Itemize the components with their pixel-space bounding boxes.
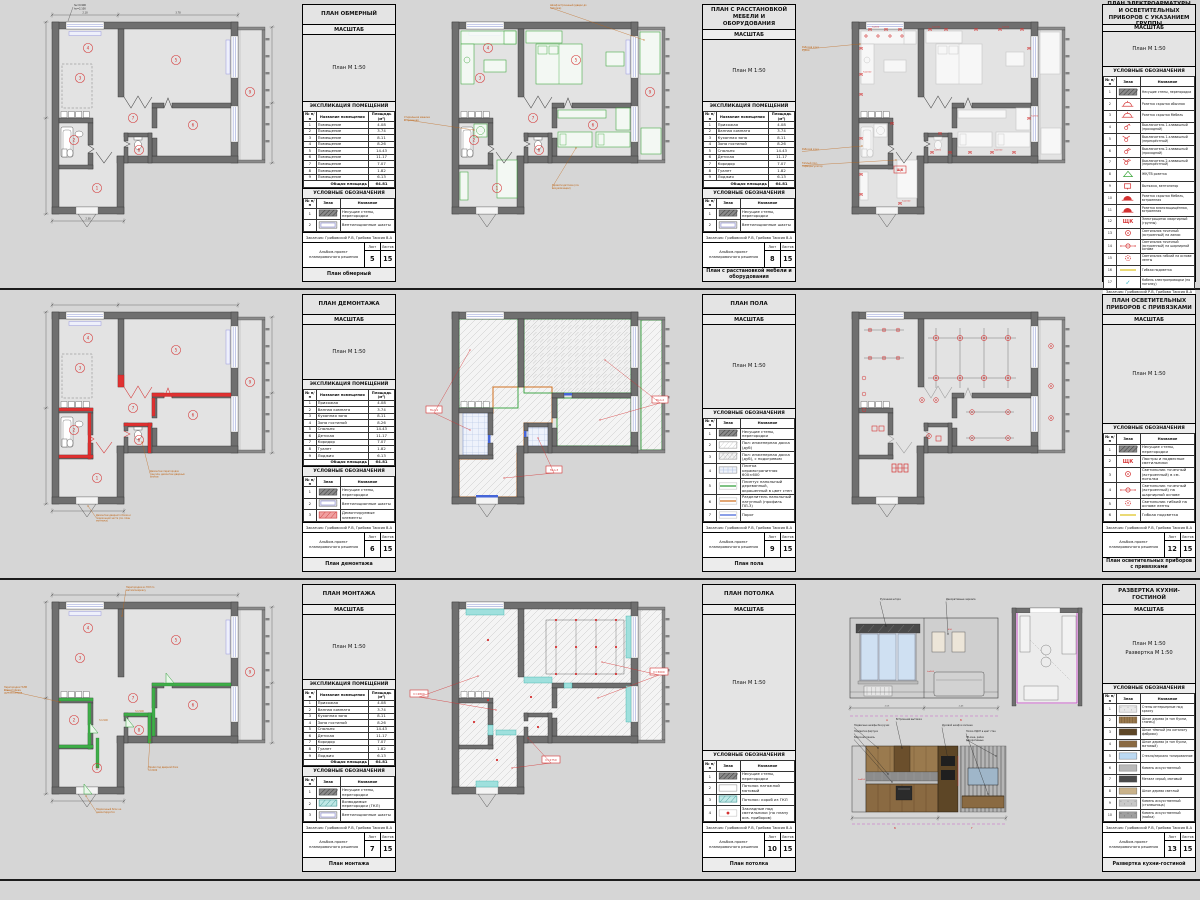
legend-row: 2Розетка скрытая обычная (1104, 99, 1195, 111)
svg-text:А: А (886, 718, 889, 722)
sheets-total: 15 (781, 841, 796, 857)
panel-title: РАЗВЕРТКА КУХНИ-ГОСТИНОЙ (1103, 585, 1195, 605)
legend-symbol-hatch-icon (318, 488, 338, 496)
svg-text:Б: Б (894, 826, 896, 830)
explication-title: ЭКСПЛИКАЦИЯ ПОМЕЩЕНИЙ (703, 102, 795, 111)
scale-line: План М 1:50 (332, 65, 365, 71)
legend-row: 3Потолок: короб из ГКЛ (704, 794, 795, 806)
panel-caption: План с расстановкой мебели и оборудовани… (703, 268, 795, 281)
scale-value: План М 1:50 (1103, 32, 1195, 67)
drawing-panel-4: 123456789Демонтаж перегородоксанузла, де… (0, 290, 400, 580)
sheet-number: 9 (765, 541, 781, 557)
svg-text:ЩК: ЩК (1123, 459, 1133, 465)
svg-text:3: 3 (79, 76, 82, 81)
title-block-footer: Альбом-проект планировочного решения Лис… (703, 243, 795, 268)
legend-title: УСЛОВНЫЕ ОБОЗНАЧЕНИЯ (703, 189, 795, 198)
album-label: Альбом-проект планировочного решения (303, 533, 365, 557)
svg-text:7: 7 (132, 696, 135, 701)
legend-section: УСЛОВНЫЕ ОБОЗНАЧЕНИЯ№ п/пЗнакНазвание1Не… (1103, 67, 1195, 290)
scale-value: План М 1:50Развертка М 1:50 (1103, 615, 1195, 684)
legend-row: 7Порог (704, 510, 795, 522)
legend-row: 2ЩКЛюстры и подвесные светильники (1104, 456, 1195, 468)
table-header-row: № п/пЗнакНазвание (704, 761, 795, 771)
client-row: Заказчик: Грибовский Р.В, Грибова Таисия… (703, 523, 795, 533)
sheet-number: 10 (765, 841, 781, 857)
sheets-label: Листов (381, 833, 396, 840)
legend-symbol-line-icon (718, 497, 738, 505)
legend-symbol-hatch-icon (718, 209, 738, 217)
table-header-row: № п/пЗнакНазвание (704, 418, 795, 428)
scale-header: МАСШТАБ (303, 25, 395, 35)
svg-text:9: 9 (249, 670, 252, 675)
legend-row: 7Выключатель 2-клавишный (перекрёстный) (1104, 157, 1195, 169)
scale-line: План М 1:50 (1132, 641, 1165, 647)
album-label: Альбом-проект планировочного решения (303, 833, 365, 857)
svg-text:8: 8 (138, 728, 141, 733)
legend-row: 7Металл серый, матовый (1104, 774, 1195, 786)
svg-text:3: 3 (79, 656, 82, 661)
total-row: Общая площадь64.81 (304, 759, 395, 766)
legend-row: 1Стены интерьерные под краску (1104, 704, 1195, 716)
legend-row: 9Вытяжка, вентилятор (1104, 181, 1195, 193)
svg-text:8: 8 (138, 438, 141, 443)
svg-text:4: 4 (87, 46, 90, 51)
client-row: Заказчик: Грибовский Р.В, Грибова Таисия… (703, 233, 795, 243)
scale-value: План М 1:50 (303, 615, 395, 680)
sheets-total: 15 (781, 251, 796, 267)
legend-row: 8ЖК/ТВ розетка (1104, 169, 1195, 181)
legend-section: УСЛОВНЫЕ ОБОЗНАЧЕНИЯ№ п/пЗнакНазвание1Ст… (1103, 684, 1195, 823)
scale-header: МАСШТАБ (1103, 25, 1195, 32)
scale-value: План М 1:50 (703, 40, 795, 102)
sheets-total: 15 (381, 541, 396, 557)
legend-title: УСЛОВНЫЕ ОБОЗНАЧЕНИЯ (303, 467, 395, 476)
album-label: Альбом-проект планировочного решения (703, 243, 765, 267)
svg-text:4: 4 (87, 626, 90, 631)
legend-row: 13Светильник точечный (встроенный) на ли… (1104, 228, 1195, 240)
legend-symbol-sw2x-icon (1118, 158, 1138, 166)
legend-symbol-spot3-icon (1118, 254, 1138, 262)
legend-symbol-hatch-icon (318, 788, 338, 796)
floor-plan (800, 290, 1100, 576)
legend-symbol-spot-icon (1118, 229, 1138, 237)
panel-caption: План демонтажа (303, 558, 395, 571)
floor-plan: h=9004502.052.43АБРулонная штораДекорати… (800, 580, 1100, 876)
svg-text:hо=2.100: hо=2.100 (74, 7, 86, 10)
legend-row: 6Камень искусственный (1104, 763, 1195, 775)
legend-row: 4Светильник точечный (встроенный) на шар… (1104, 483, 1195, 499)
floor-plan: 2.183.782.38hн=0.900hо=2.100123456789 (0, 0, 300, 286)
legend-symbol-reddot-icon (718, 809, 738, 817)
legend-symbol-spot-icon (1118, 470, 1138, 478)
legend-row: 3Вентиляционные шахты (304, 810, 395, 822)
svg-text:h=2100: h=2100 (99, 719, 108, 722)
panel-title: ПЛАН ОСВЕТИТЕЛЬНЫХ ПРИБОРОВ С ПРИВЯЗКАМИ (1103, 295, 1195, 315)
svg-text:5: 5 (575, 58, 578, 63)
legend-symbol-speckle-icon (1118, 705, 1138, 713)
legend-row: 2Пол: инженерная доска (дуб) (704, 440, 795, 452)
drawing-panel-2: 123456789Шкаф встроенный (двери допотолк… (400, 0, 800, 290)
scale-header: МАСШТАБ (703, 315, 795, 325)
svg-text:1: 1 (96, 476, 99, 481)
legend-symbol-shch-icon: ЩК (1118, 457, 1138, 465)
legend-row: 2Вентиляционные шахты (304, 498, 395, 510)
title-block: ПЛАН МОНТАЖА МАСШТАБ План М 1:50 ЭКСПЛИК… (302, 584, 396, 872)
scale-value: План М 1:50 (703, 325, 795, 409)
svg-text:Подсветка фартука: Подсветка фартука (854, 730, 879, 733)
title-block-footer: Альбом-проект планировочного решения Лис… (303, 833, 395, 858)
legend-table: № п/пЗнакНазвание1Несущие стены, перегор… (303, 476, 395, 522)
client-row: Заказчик: Грибовский Р.В, Грибова Таисия… (1103, 823, 1195, 833)
title-block: ПЛАН ПОЛА МАСШТАБ План М 1:50 УСЛОВНЫЕ О… (702, 294, 796, 572)
sheets-label: Листов (781, 243, 796, 250)
drawing-panel-9: h=9004502.052.43АБРулонная штораДекорати… (800, 580, 1200, 880)
legend-symbol-lamp-icon (1118, 100, 1138, 108)
legend-row: 5Плинтус напольный деревянный, окрашенны… (704, 479, 795, 495)
sheets-total: 15 (381, 251, 396, 267)
legend-row: 1Несущие стены, перегородки (704, 208, 795, 220)
svg-text:Подвесные шкафы без ручек: Подвесные шкафы без ручек (854, 724, 890, 727)
legend-row: 15Светильник гибкий на основе ленты (1104, 253, 1195, 265)
sheet-label: Лист (765, 243, 781, 250)
legend-symbol-redfill-icon (318, 511, 338, 519)
legend-symbol-check-icon: ✓ (1118, 278, 1138, 286)
legend-row: 3Розетка скрытая Мебель (1104, 110, 1195, 122)
svg-text:Духовой шкаф в колонне: Духовой шкаф в колонне (942, 724, 973, 727)
legend-title: УСЛОВНЫЕ ОБОЗНАЧЕНИЯ (703, 751, 795, 760)
svg-text:ЩК: ЩК (897, 168, 904, 172)
panel-title: ПЛАН ПОЛА (703, 295, 795, 315)
title-block-footer: Альбом-проект планировочного решения Лис… (703, 533, 795, 558)
scale-value: План М 1:50 (303, 35, 395, 102)
sheet-label: Лист (765, 533, 781, 540)
explication-table: № п/пНазвание помещенияПлощадь (м²)1Прих… (303, 689, 395, 766)
legend-section: УСЛОВНЫЕ ОБОЗНАЧЕНИЯ№ п/пЗнакНазвание1Не… (303, 467, 395, 523)
legend-row: 1Несущие стены, перегородки (704, 771, 795, 783)
legend-row: 5Стекло/зеркало тонированное (1104, 751, 1195, 763)
sheet-number: 8 (765, 251, 781, 267)
table-header-row: № п/пНазвание помещенияПлощадь (м²) (704, 111, 795, 121)
legend-row: 8Шпон дерева светлый (1104, 786, 1195, 798)
drawing-panel-8: h=2800h=3000h=2750 ПЛАН ПОТОЛКА МАСШТАБ … (400, 580, 800, 880)
panel-title: ПЛАН ОБМЕРНЫЙ (303, 5, 395, 25)
svg-text:Б: Б (960, 718, 962, 722)
legend-symbol-speckleg-icon (1118, 799, 1138, 807)
legend-table: № п/пЗнакНазвание1Несущие стены, перегор… (303, 776, 395, 822)
album-label: Альбом-проект планировочного решения (703, 833, 765, 857)
explication-title: ЭКСПЛИКАЦИЯ ПОМЕЩЕНИЙ (303, 380, 395, 389)
sheet-counter: ЛистЛистов 715 (365, 833, 395, 857)
svg-text:h=850: h=850 (858, 779, 866, 781)
scale-header: МАСШТАБ (303, 605, 395, 615)
svg-text:2.18: 2.18 (82, 11, 88, 14)
legend-row: 6Гибкая подсветка (1104, 510, 1195, 522)
svg-text:h=3000: h=3000 (653, 670, 664, 674)
svg-text:2.43: 2.43 (959, 705, 964, 707)
svg-text:9: 9 (249, 380, 252, 385)
legend-title: УСЛОВНЫЕ ОБОЗНАЧЕНИЯ (703, 409, 795, 418)
client-row: Заказчик: Грибовский Р.В, Грибова Таисия… (303, 523, 395, 533)
sheets-label: Листов (381, 533, 396, 540)
legend-symbol-sw1-icon (1118, 123, 1138, 131)
explication-section: ЭКСПЛИКАЦИЯ ПОМЕЩЕНИЙ№ п/пНазвание помещ… (303, 380, 395, 467)
legend-row: 14Светильник точечный (встроенный) на ша… (1104, 240, 1195, 253)
legend-symbol-yline-icon (1118, 511, 1138, 519)
svg-text:металлокаркасу: металлокаркасу (126, 589, 147, 592)
scale-value: План М 1:50 (303, 325, 395, 380)
sheet-label: Лист (365, 533, 381, 540)
table-header-row: № п/пЗнакНазвание (304, 198, 395, 208)
svg-text:1: 1 (96, 186, 99, 191)
svg-text:450: 450 (948, 629, 953, 631)
sheets-label: Листов (1181, 833, 1196, 840)
svg-text:5: 5 (175, 348, 178, 353)
table-header-row: № п/пНазвание помещенияПлощадь (м²) (304, 690, 395, 700)
legend-symbol-hatch-icon (1118, 445, 1138, 453)
legend-row: 9Камень искусственный (столешница) (1104, 798, 1195, 810)
legend-symbol-spot2-icon (1118, 486, 1138, 494)
svg-text:h=900: h=900 (927, 671, 935, 673)
legend-row: 1Несущие стены, перегородки (1104, 87, 1195, 99)
legend-section: УСЛОВНЫЕ ОБОЗНАЧЕНИЯ№ п/пЗнакНазвание1Не… (703, 409, 795, 523)
legend-section: УСЛОВНЫЕ ОБОЗНАЧЕНИЯ№ п/пЗнакНазвание1Не… (703, 189, 795, 233)
legend-symbol-lampf-icon (1118, 194, 1138, 202)
scale-line: План М 1:50 (1132, 371, 1165, 377)
legend-symbol-vent-icon (318, 811, 338, 819)
legend-symbol-color-icon (1118, 764, 1138, 772)
sheet-counter: ЛистЛистов 915 (765, 533, 795, 557)
legend-symbol-color-icon (1118, 728, 1138, 736)
drawing-panel-5: Пол-1Пол-2Пол-3 ПЛАН ПОЛА МАСШТАБ План М… (400, 290, 800, 580)
legend-row: 1Несущие стены, перегородки (704, 428, 795, 440)
table-header-row: № п/пНазвание помещенияПлощадь (м²) (304, 390, 395, 400)
floor-plan: 123456789Шкаф встроенный (двери допотолк… (400, 0, 700, 286)
legend-symbol-hatch-icon (1118, 88, 1138, 96)
legend-symbol-color-icon (1118, 775, 1138, 783)
sheets-total: 15 (1181, 541, 1196, 557)
legend-row: 4Закладные под светильники (по плану осв… (704, 806, 795, 822)
total-row: Общая площадь64.81 (304, 459, 395, 466)
legend-symbol-sqr-icon (1118, 182, 1138, 190)
scale-line: План М 1:50 (732, 363, 765, 369)
total-row: Общая площадь64.81 (304, 181, 395, 188)
explication-section: ЭКСПЛИКАЦИЯ ПОМЕЩЕНИЙ№ п/пНазвание помещ… (303, 102, 395, 189)
legend-row: 2Потолок натяжной матовый (704, 783, 795, 795)
svg-text:h=300: h=300 (934, 150, 942, 152)
title-block: ПЛАН ПОТОЛКА МАСШТАБ План М 1:50 УСЛОВНЫ… (702, 584, 796, 872)
legend-symbol-tile-icon (718, 466, 738, 474)
sheets-total: 15 (381, 841, 396, 857)
legend-symbol-vent-icon (318, 221, 338, 229)
explication-title: ЭКСПЛИКАЦИЯ ПОМЕЩЕНИЙ (303, 680, 395, 689)
svg-text:7: 7 (132, 406, 135, 411)
floor-plan: h=2800h=3000h=2750 (400, 580, 700, 866)
title-block-footer: Альбом-проект планировочного решения Лис… (1103, 833, 1195, 858)
legend-symbol-hatch-icon (318, 209, 338, 217)
legend-row: 2Шпон дерева (в тон Кухни, глянец) (1104, 715, 1195, 727)
client-row: Заказчик: Грибовский Р.В, Грибова Таисия… (1103, 523, 1195, 533)
sheet-number: 13 (1165, 841, 1181, 857)
title-block: ПЛАН С РАССТАНОВКОЙ МЕБЕЛИ И ОБОРУДОВАНИ… (702, 4, 796, 282)
legend-row: 2Вентиляционные шахты (704, 220, 795, 232)
svg-text:монтажа): монтажа) (96, 520, 108, 523)
svg-text:2: 2 (73, 428, 76, 433)
legend-row: 1Несущие стены, перегородки (304, 787, 395, 799)
svg-text:2.05: 2.05 (885, 705, 890, 707)
scale-header: МАСШТАБ (1103, 315, 1195, 325)
svg-text:1: 1 (96, 766, 99, 771)
client-row: Заказчик: Грибовский Р.В, Грибова Таисия… (703, 823, 795, 833)
legend-title: УСЛОВНЫЕ ОБОЗНАЧЕНИЯ (303, 189, 395, 198)
sheet-number: 7 (365, 841, 381, 857)
explication-table: № п/пНазвание помещенияПлощадь (м²)1Прих… (703, 111, 795, 188)
table-header-row: № п/пЗнакНазвание (304, 777, 395, 787)
floor-plan: 123456789h=2100h=2100Перегородка из ГКЛ … (0, 580, 300, 866)
legend-row: 4Выключатель 1-клавишный (проходной) (1104, 122, 1195, 134)
legend-row: 3Шпон тёмный (по каталогу фабрики) (1104, 727, 1195, 739)
svg-text:4: 4 (87, 336, 90, 341)
svg-text:3: 3 (479, 76, 482, 81)
sheet-counter: ЛистЛистов 815 (765, 243, 795, 267)
scale-line: Развертка М 1:50 (1125, 650, 1172, 656)
svg-text:5: 5 (175, 638, 178, 643)
svg-text:2.38: 2.38 (85, 217, 91, 220)
svg-text:6: 6 (192, 413, 195, 418)
legend-table: № п/пЗнакНазвание1Несущие стены, перегор… (303, 198, 395, 232)
legend-row: 16Гибкая подсветка (1104, 265, 1195, 277)
album-label: Альбом-проект планировочного решения (1103, 833, 1165, 857)
sheet-label: Лист (765, 833, 781, 840)
legend-section: УСЛОВНЫЕ ОБОЗНАЧЕНИЯ№ п/пЗнакНазвание1Не… (303, 767, 395, 823)
svg-text:h=2100: h=2100 (135, 710, 144, 713)
svg-text:4: 4 (487, 46, 490, 51)
sheets-label: Листов (381, 243, 396, 250)
panel-caption: План обмерный (303, 268, 395, 281)
legend-symbol-yline-icon (1118, 266, 1138, 274)
legend-table: № п/пЗнакНазвание1Несущие стены, перегор… (703, 760, 795, 822)
legend-row: 3Пол: инженерная доска (дуб), с подогрев… (704, 451, 795, 463)
scale-value: План М 1:50 (703, 615, 795, 751)
svg-text:1: 1 (496, 186, 499, 191)
explication-section: ЭКСПЛИКАЦИЯ ПОМЕЩЕНИЙ№ п/пНазвание помещ… (703, 102, 795, 189)
legend-symbol-tri-icon (1118, 170, 1138, 178)
svg-text:Полка ЛДСП в цвет стен: Полка ЛДСП в цвет стен (966, 730, 996, 733)
legend-symbol-color-icon (1118, 740, 1138, 748)
sheet-label: Лист (1165, 533, 1181, 540)
svg-text:блоков: блоков (150, 476, 159, 479)
svg-text:9: 9 (249, 90, 252, 95)
sheet-counter: ЛистЛистов 1015 (765, 833, 795, 857)
svg-text:h=300: h=300 (872, 27, 880, 29)
drawing-panel-7: 123456789h=2100h=2100Перегородка из ГКЛ … (0, 580, 400, 880)
legend-row: 4Плитка керамогранитная 600×600 (704, 463, 795, 479)
svg-text:ЩК: ЩК (1123, 220, 1133, 226)
scale-line: План М 1:50 (1132, 46, 1165, 52)
legend-row: 5Выключатель 1-клавишный (перекрёстный) (1104, 134, 1195, 146)
scale-header: МАСШТАБ (303, 315, 395, 325)
legend-symbol-vent-icon (718, 221, 738, 229)
legend-row: 12ЩКЭлектрощиток квартирный (группы) (1104, 216, 1195, 228)
legend-symbol-diag-icon (718, 441, 738, 449)
title-block-footer: Альбом-проект планировочного решения Лис… (1103, 533, 1195, 558)
svg-text:Пол-3: Пол-3 (550, 468, 559, 472)
legend-symbol-line-icon (718, 482, 738, 490)
explication-table: № п/пНазвание помещенияПлощадь (м²)1Прих… (303, 389, 395, 466)
legend-section: УСЛОВНЫЕ ОБОЗНАЧЕНИЯ№ п/пЗнакНазвание1Не… (303, 189, 395, 233)
legend-title: УСЛОВНЫЕ ОБОЗНАЧЕНИЯ (1103, 684, 1195, 693)
svg-text:✓: ✓ (1126, 279, 1131, 285)
svg-text:5: 5 (175, 58, 178, 63)
drawing-panel-6: ПЛАН ОСВЕТИТЕЛЬНЫХ ПРИБОРОВ С ПРИВЯЗКАМИ… (800, 290, 1200, 580)
svg-text:h=2000: h=2000 (863, 72, 872, 74)
album-label: Альбом-проект планировочного решения (1103, 533, 1165, 557)
svg-text:8: 8 (138, 148, 141, 153)
total-row: Общая площадь64.81 (704, 181, 795, 188)
legend-row: 17✓Кабель электропроводки (по потолку) (1104, 277, 1195, 289)
sheet-number: 5 (365, 251, 381, 267)
table-header-row: № п/пЗнакНазвание (1104, 693, 1195, 703)
legend-symbol-woodtex-icon (1118, 716, 1138, 724)
title-block: ПЛАН ОСВЕТИТЕЛЬНЫХ ПРИБОРОВ С ПРИВЯЗКАМИ… (1102, 294, 1196, 572)
svg-text:8: 8 (538, 148, 541, 153)
title-block: РАЗВЕРТКА КУХНИ-ГОСТИНОЙ МАСШТАБ План М … (1102, 584, 1196, 872)
legend-section: УСЛОВНЫЕ ОБОЗНАЧЕНИЯ№ п/пЗнакНазвание1Не… (1103, 424, 1195, 523)
svg-text:Пол-1: Пол-1 (430, 408, 439, 412)
legend-symbol-shch-icon: ЩК (1118, 217, 1138, 225)
legend-title: УСЛОВНЫЕ ОБОЗНАЧЕНИЯ (1103, 67, 1195, 76)
sheet-counter: ЛистЛистов 615 (365, 533, 395, 557)
legend-symbol-white-icon (718, 784, 738, 792)
floor-plan: h=300h=2000h=300h=2000h=300h=2000h=300h=… (800, 0, 1100, 286)
legend-section: УСЛОВНЫЕ ОБОЗНАЧЕНИЯ№ п/пЗнакНазвание1Не… (703, 751, 795, 823)
sheets-label: Листов (781, 533, 796, 540)
explication-section: ЭКСПЛИКАЦИЯ ПОМЕЩЕНИЙ№ п/пНазвание помещ… (303, 680, 395, 767)
sheets-total: 15 (1181, 841, 1196, 857)
svg-text:визуализации): визуализации) (552, 187, 571, 190)
title-block: ПЛАН ЭЛЕКТРОАРМАТУРЫ И ОСВЕТИТЕЛЬНЫХ ПРИ… (1102, 4, 1196, 282)
svg-text:h=2100: h=2100 (148, 769, 158, 772)
legend-row: 1Несущие стены, перегородки (1104, 444, 1195, 456)
scale-header: МАСШТАБ (703, 30, 795, 40)
svg-text:Г: Г (971, 826, 973, 830)
panel-caption: План пола (703, 558, 795, 571)
drawing-panel-3: h=300h=2000h=300h=2000h=300h=2000h=300h=… (800, 0, 1200, 290)
legend-symbol-hatch-icon (718, 429, 738, 437)
sheet-number: 6 (365, 541, 381, 557)
legend-row: 10Камень искусственный (мойка) (1104, 810, 1195, 822)
legend-symbol-vent-icon (318, 499, 338, 507)
svg-text:2: 2 (473, 138, 476, 143)
svg-text:2: 2 (73, 138, 76, 143)
title-block-footer: Альбом-проект планировочного решения Лис… (303, 533, 395, 558)
sheet-counter: ЛистЛистов 1315 (1165, 833, 1195, 857)
scale-line: План М 1:50 (332, 644, 365, 650)
legend-symbol-spot3-icon (1118, 499, 1138, 507)
svg-text:6: 6 (192, 123, 195, 128)
floor-plan: 123456789Демонтаж перегородоксанузла, де… (0, 290, 300, 576)
panel-title: ПЛАН МОНТАЖА (303, 585, 395, 605)
legend-row: 2Возводимые перегородки (ГКЛ) (304, 798, 395, 810)
drawing-sheet: 2.183.782.38hн=0.900hо=2.100123456789 ПЛ… (0, 0, 1200, 900)
sheet-label: Лист (1165, 833, 1181, 840)
sheets-label: Листов (1181, 533, 1196, 540)
title-block: ПЛАН ДЕМОНТАЖА МАСШТАБ План М 1:50 ЭКСПЛ… (302, 294, 396, 572)
explication-table: № п/пНазвание помещенияПлощадь (м²)1Поме… (303, 111, 395, 188)
panel-caption: План осветительных приборов с привязками (1103, 558, 1195, 571)
panel-title: ПЛАН ЭЛЕКТРОАРМАТУРЫ И ОСВЕТИТЕЛЬНЫХ ПРИ… (1103, 5, 1195, 25)
legend-symbol-diag2-icon (718, 452, 738, 460)
svg-text:h=300: h=300 (1002, 27, 1010, 29)
